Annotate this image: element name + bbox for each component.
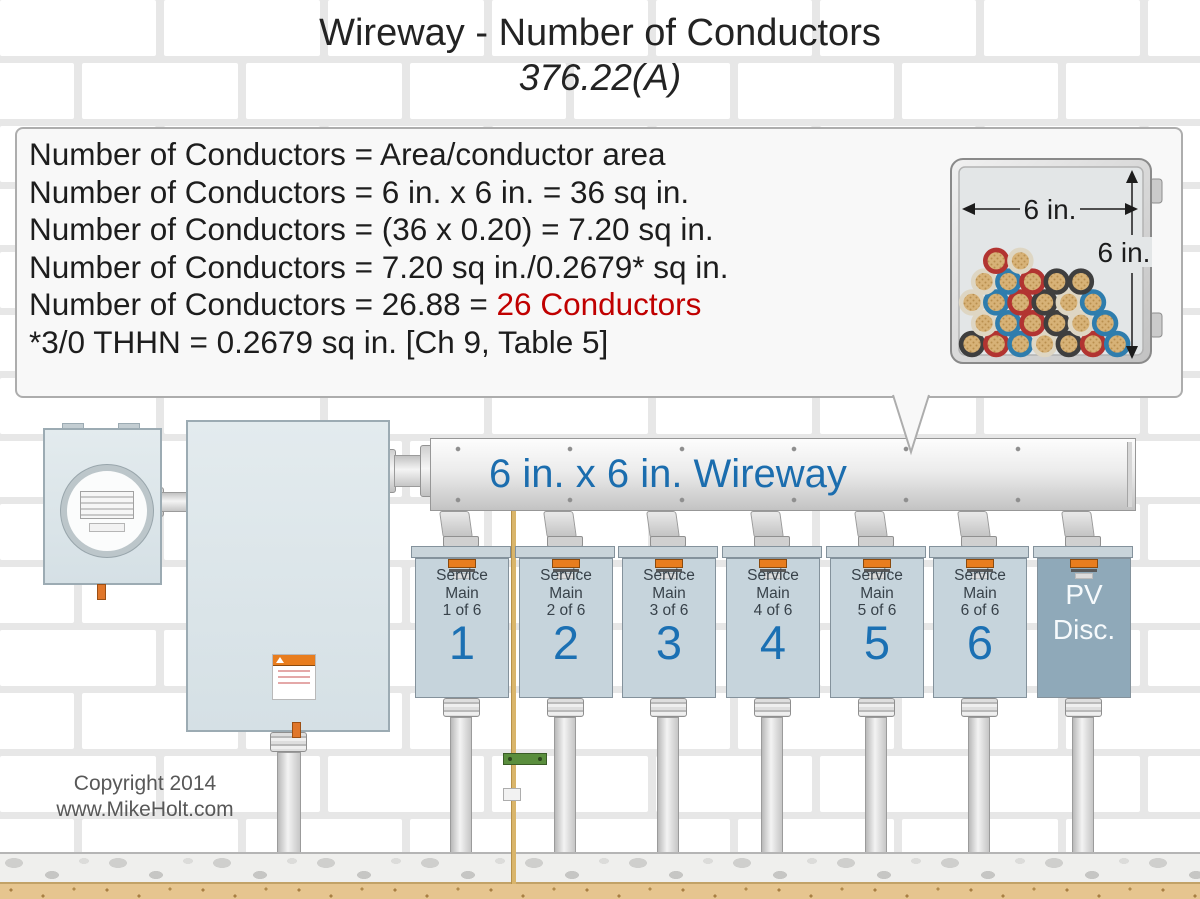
panel-body: ServiceMain1 of 61 xyxy=(415,558,509,698)
conductor xyxy=(973,271,995,293)
pipe-connector xyxy=(547,698,584,717)
calc-line-3: Number of Conductors = (36 x 0.20) = 7.2… xyxy=(29,211,929,249)
conductor xyxy=(1034,333,1056,355)
service-main-panel-4: ServiceMain4 of 64 xyxy=(726,510,820,862)
panel-cap xyxy=(1033,546,1133,558)
panel-label: ServiceMain4 of 6 xyxy=(727,567,819,620)
panel-number: 3 xyxy=(623,615,715,670)
soil-strip xyxy=(0,882,1200,899)
calc-line-2: Number of Conductors = 6 in. x 6 in. = 3… xyxy=(29,174,929,212)
calc-line-6: *3/0 THHN = 0.2679 sq in. [Ch 9, Table 5… xyxy=(29,324,929,362)
conduit-offset xyxy=(1061,511,1095,538)
conductor xyxy=(1046,271,1068,293)
conductor xyxy=(997,312,1019,334)
panel-number: 6 xyxy=(934,615,1026,670)
panel-body: ServiceMain3 of 63 xyxy=(622,558,716,698)
panel-body: ServiceMain5 of 65 xyxy=(830,558,924,698)
warning-header xyxy=(863,559,891,568)
callout-pointer xyxy=(884,394,938,456)
panel-label: ServiceMain1 of 6 xyxy=(416,567,508,620)
warning-header xyxy=(759,559,787,568)
panel-label: ServiceMain2 of 6 xyxy=(520,567,612,620)
warning-label xyxy=(1038,559,1130,579)
panel-cap xyxy=(411,546,511,558)
warning-header xyxy=(448,559,476,568)
conductor xyxy=(1082,292,1104,314)
panel-cap xyxy=(722,546,822,558)
panel-number: 1 xyxy=(416,615,508,670)
warning-header xyxy=(273,655,315,666)
conduit-riser xyxy=(761,717,783,863)
service-main-panel-5: ServiceMain5 of 65 xyxy=(830,510,924,862)
conductor xyxy=(961,292,983,314)
wireway: 6 in. x 6 in. Wireway xyxy=(430,438,1136,511)
pipe-connector xyxy=(754,698,791,717)
pipe-connector xyxy=(961,698,998,717)
conduit-riser xyxy=(968,717,990,863)
conductor xyxy=(985,333,1007,355)
pipe-connector xyxy=(858,698,895,717)
wireway-endcap xyxy=(1127,442,1132,507)
panel-number: 4 xyxy=(727,615,819,670)
conductor xyxy=(1010,333,1032,355)
panel-number: 5 xyxy=(831,615,923,670)
wireway-label: 6 in. x 6 in. Wireway xyxy=(489,439,847,510)
conductor xyxy=(1010,292,1032,314)
conductor xyxy=(1058,292,1080,314)
meter-nameplate xyxy=(89,523,125,532)
service-main-panel-1: ServiceMain1 of 61 xyxy=(415,510,509,862)
panel-body: ServiceMain6 of 66 xyxy=(933,558,1027,698)
conductor xyxy=(1094,312,1116,334)
conductor xyxy=(1058,333,1080,355)
main-panel-connector xyxy=(270,732,307,752)
concrete-footing xyxy=(0,852,1200,882)
conductor xyxy=(1034,292,1056,314)
grounding-conductor-lower xyxy=(511,852,516,884)
copyright-notice: Copyright 2014 www.MikeHolt.com xyxy=(30,771,260,823)
panel-body: ServiceMain4 of 64 xyxy=(726,558,820,698)
panel-label: ServiceMain3 of 6 xyxy=(623,567,715,620)
conduit-offset xyxy=(439,511,473,538)
calc-result-highlight: 26 Conductors xyxy=(497,286,702,322)
conductor xyxy=(1046,312,1068,334)
conductor xyxy=(973,312,995,334)
pipe-connector xyxy=(1065,698,1102,717)
code-reference: 376.22(A) xyxy=(0,57,1200,99)
connector-seal xyxy=(292,722,301,738)
calc-line-1: Number of Conductors = Area/conductor ar… xyxy=(29,136,929,174)
conduit-offset xyxy=(646,511,680,538)
wireway-diagram: Wireway - Number of Conductors 376.22(A)… xyxy=(0,0,1200,899)
service-main-panel-2: ServiceMain2 of 62 xyxy=(519,510,613,862)
meter-seal xyxy=(97,584,106,600)
pipe-connector xyxy=(650,698,687,717)
conductor xyxy=(1070,312,1092,334)
conduit-riser xyxy=(450,717,472,863)
warning-header xyxy=(966,559,994,568)
calc-line-5: Number of Conductors = 26.88 = 26 Conduc… xyxy=(29,286,929,324)
conduit-riser xyxy=(554,717,576,863)
conductor xyxy=(1022,312,1044,334)
panel-cap xyxy=(618,546,718,558)
panel-label: ServiceMain5 of 6 xyxy=(831,567,923,620)
warning-label xyxy=(272,654,316,700)
warning-header xyxy=(655,559,683,568)
panel-body: ServiceMain2 of 62 xyxy=(519,558,613,698)
conductor xyxy=(1070,271,1092,293)
conduit-offset xyxy=(543,511,577,538)
conduit-offset xyxy=(957,511,991,538)
conductor xyxy=(997,271,1019,293)
conductor xyxy=(1010,250,1032,272)
meter-face xyxy=(61,465,153,557)
conductor xyxy=(961,333,983,355)
page-title: Wireway - Number of Conductors xyxy=(0,12,1200,55)
warning-header xyxy=(552,559,580,568)
pv-disconnect-panel: PVDisc. xyxy=(1037,510,1131,862)
conductor xyxy=(1082,333,1104,355)
panel-label: PVDisc. xyxy=(1038,577,1130,647)
conduit-riser xyxy=(865,717,887,863)
wireway-cross-section: 6 in. 6 in. xyxy=(948,155,1170,371)
panel-cap xyxy=(515,546,615,558)
panel-cap xyxy=(929,546,1029,558)
panel-number: 2 xyxy=(520,615,612,670)
panel-label: ServiceMain6 of 6 xyxy=(934,567,1026,620)
conductor xyxy=(1106,333,1128,355)
meter-register xyxy=(80,491,134,519)
pipe-connector xyxy=(443,698,480,717)
height-label: 6 in. xyxy=(1098,237,1151,268)
panel-cap xyxy=(826,546,926,558)
conduit-riser xyxy=(657,717,679,863)
service-main-panel-3: ServiceMain3 of 63 xyxy=(622,510,716,862)
warning-header xyxy=(1070,559,1098,568)
conductor xyxy=(1022,271,1044,293)
conductor xyxy=(985,250,1007,272)
conduit-offset xyxy=(854,511,888,538)
main-panel-riser xyxy=(277,752,301,862)
panel-body: PVDisc. xyxy=(1037,558,1131,698)
conduit-offset xyxy=(750,511,784,538)
calc-line-4: Number of Conductors = 7.20 sq in./0.267… xyxy=(29,249,929,287)
width-label: 6 in. xyxy=(1024,194,1077,225)
conductor xyxy=(985,292,1007,314)
calculation-text: Number of Conductors = Area/conductor ar… xyxy=(29,136,929,362)
conduit-riser xyxy=(1072,717,1094,863)
service-main-panel-6: ServiceMain6 of 66 xyxy=(933,510,1027,862)
